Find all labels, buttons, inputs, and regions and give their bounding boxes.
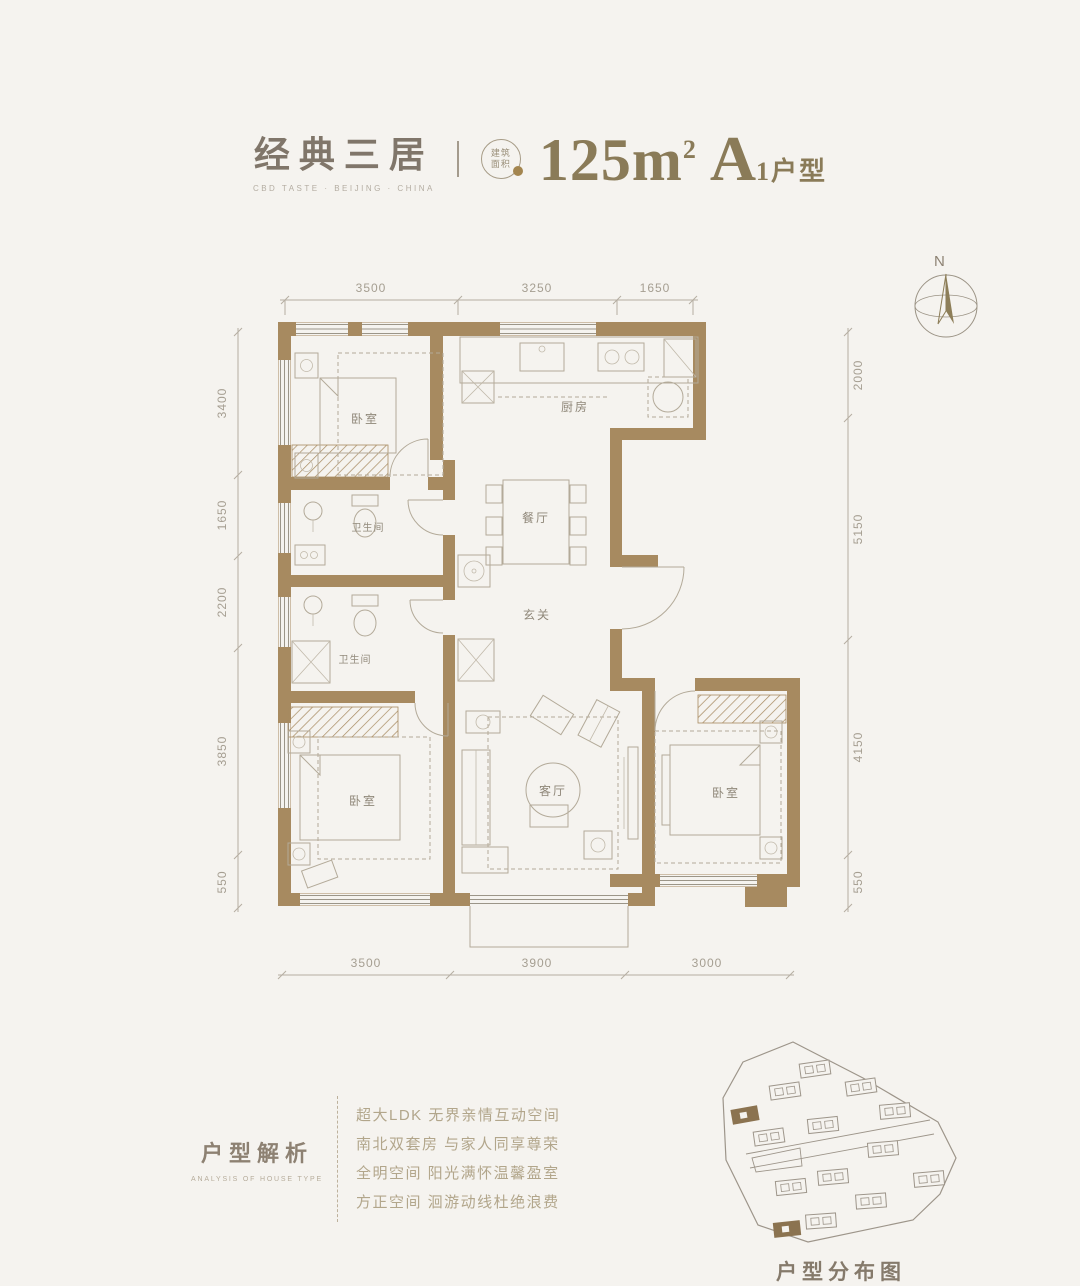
sitemap-title: 户型分布图 — [688, 1256, 994, 1286]
dim-bottom-1: 3500 — [351, 956, 382, 970]
page-subtitle: CBD TASTE · BEIJING · CHINA — [253, 184, 435, 193]
analysis-divider — [337, 1096, 338, 1222]
dim-top-3: 1650 — [640, 281, 671, 295]
bath-fixtures — [292, 495, 494, 683]
badge-dot-icon — [513, 166, 523, 176]
compass-n-label: N — [934, 253, 945, 270]
analysis-title-block: 户型解析 ANALYSIS OF HOUSE TYPE — [183, 1136, 331, 1183]
analysis-line: 南北双套房 与家人同享尊荣 — [356, 1130, 560, 1159]
dim-left-2: 1650 — [215, 500, 229, 531]
page-title: 经典三居 — [253, 126, 435, 178]
bay-window — [470, 906, 628, 947]
room-label-bedroom-se: 卧室 — [712, 785, 740, 800]
room-label-dining: 餐厅 — [522, 510, 550, 525]
page: 经典三居 CBD TASTE · BEIJING · CHINA 建筑 面积 1… — [0, 0, 1080, 1286]
room-label-bedroom-nw: 卧室 — [351, 411, 379, 426]
dim-left-5: 550 — [215, 870, 229, 893]
area-value: 125m — [539, 126, 683, 195]
room-label-bath-lower: 卫生间 — [339, 653, 372, 666]
dim-left-1: 3400 — [215, 388, 229, 419]
room-label-bedroom-sw: 卧室 — [349, 793, 377, 808]
room-label-living: 客厅 — [539, 783, 567, 798]
analysis-title: 户型解析 — [183, 1136, 331, 1168]
room-label-kitchen: 厨房 — [561, 399, 589, 414]
unit-label: 1户型 — [756, 151, 827, 188]
analysis-line: 全明空间 阳光满怀温馨盈室 — [356, 1159, 560, 1188]
analysis-subtitle: ANALYSIS OF HOUSE TYPE — [183, 1176, 331, 1183]
north-compass-icon: N — [898, 248, 994, 352]
dim-left-4: 3850 — [215, 736, 229, 767]
badge-line2: 面积 — [491, 159, 511, 170]
room-label-bath-upper: 卫生间 — [352, 521, 385, 534]
dim-left-3: 2200 — [215, 587, 229, 618]
dim-top-1: 3500 — [356, 281, 387, 295]
title-block: 经典三居 CBD TASTE · BEIJING · CHINA — [253, 126, 435, 193]
sitemap-section: 户型分布图 — [688, 1022, 994, 1286]
sitemap-plan — [688, 1022, 994, 1247]
dim-right-2: 5150 — [851, 514, 865, 545]
analysis-line: 超大LDK 无界亲情互动空间 — [356, 1101, 560, 1130]
analysis-line: 方正空间 洄游动线杜绝浪费 — [356, 1188, 560, 1217]
unit-letter: A — [710, 122, 756, 196]
floor-plan: 卧室 厨房 餐厅 玄关 卫生间 卫生间 客厅 卧室 卧室 3500 3250 1… — [200, 245, 910, 1015]
bed-sw — [288, 731, 430, 888]
room-label-foyer: 玄关 — [523, 607, 551, 622]
area-badge: 建筑 面积 — [481, 139, 521, 179]
dim-right-1: 2000 — [851, 360, 865, 391]
analysis-section: 户型解析 ANALYSIS OF HOUSE TYPE 超大LDK 无界亲情互动… — [183, 1096, 613, 1222]
dim-right-3: 4150 — [851, 732, 865, 763]
window-icons — [279, 322, 758, 906]
area-superscript: 2 — [683, 135, 696, 165]
dim-top-2: 3250 — [522, 281, 553, 295]
dim-right-4: 550 — [851, 870, 865, 893]
area-group: 125m 2 A 1户型 — [539, 122, 827, 196]
header: 经典三居 CBD TASTE · BEIJING · CHINA 建筑 面积 1… — [0, 122, 1080, 196]
dim-bottom-2: 3900 — [522, 956, 553, 970]
analysis-lines: 超大LDK 无界亲情互动空间 南北双套房 与家人同享尊荣 全明空间 阳光满怀温馨… — [356, 1101, 560, 1217]
dim-bottom-3: 3000 — [692, 956, 723, 970]
badge-line1: 建筑 — [491, 148, 511, 159]
header-divider — [457, 141, 459, 177]
